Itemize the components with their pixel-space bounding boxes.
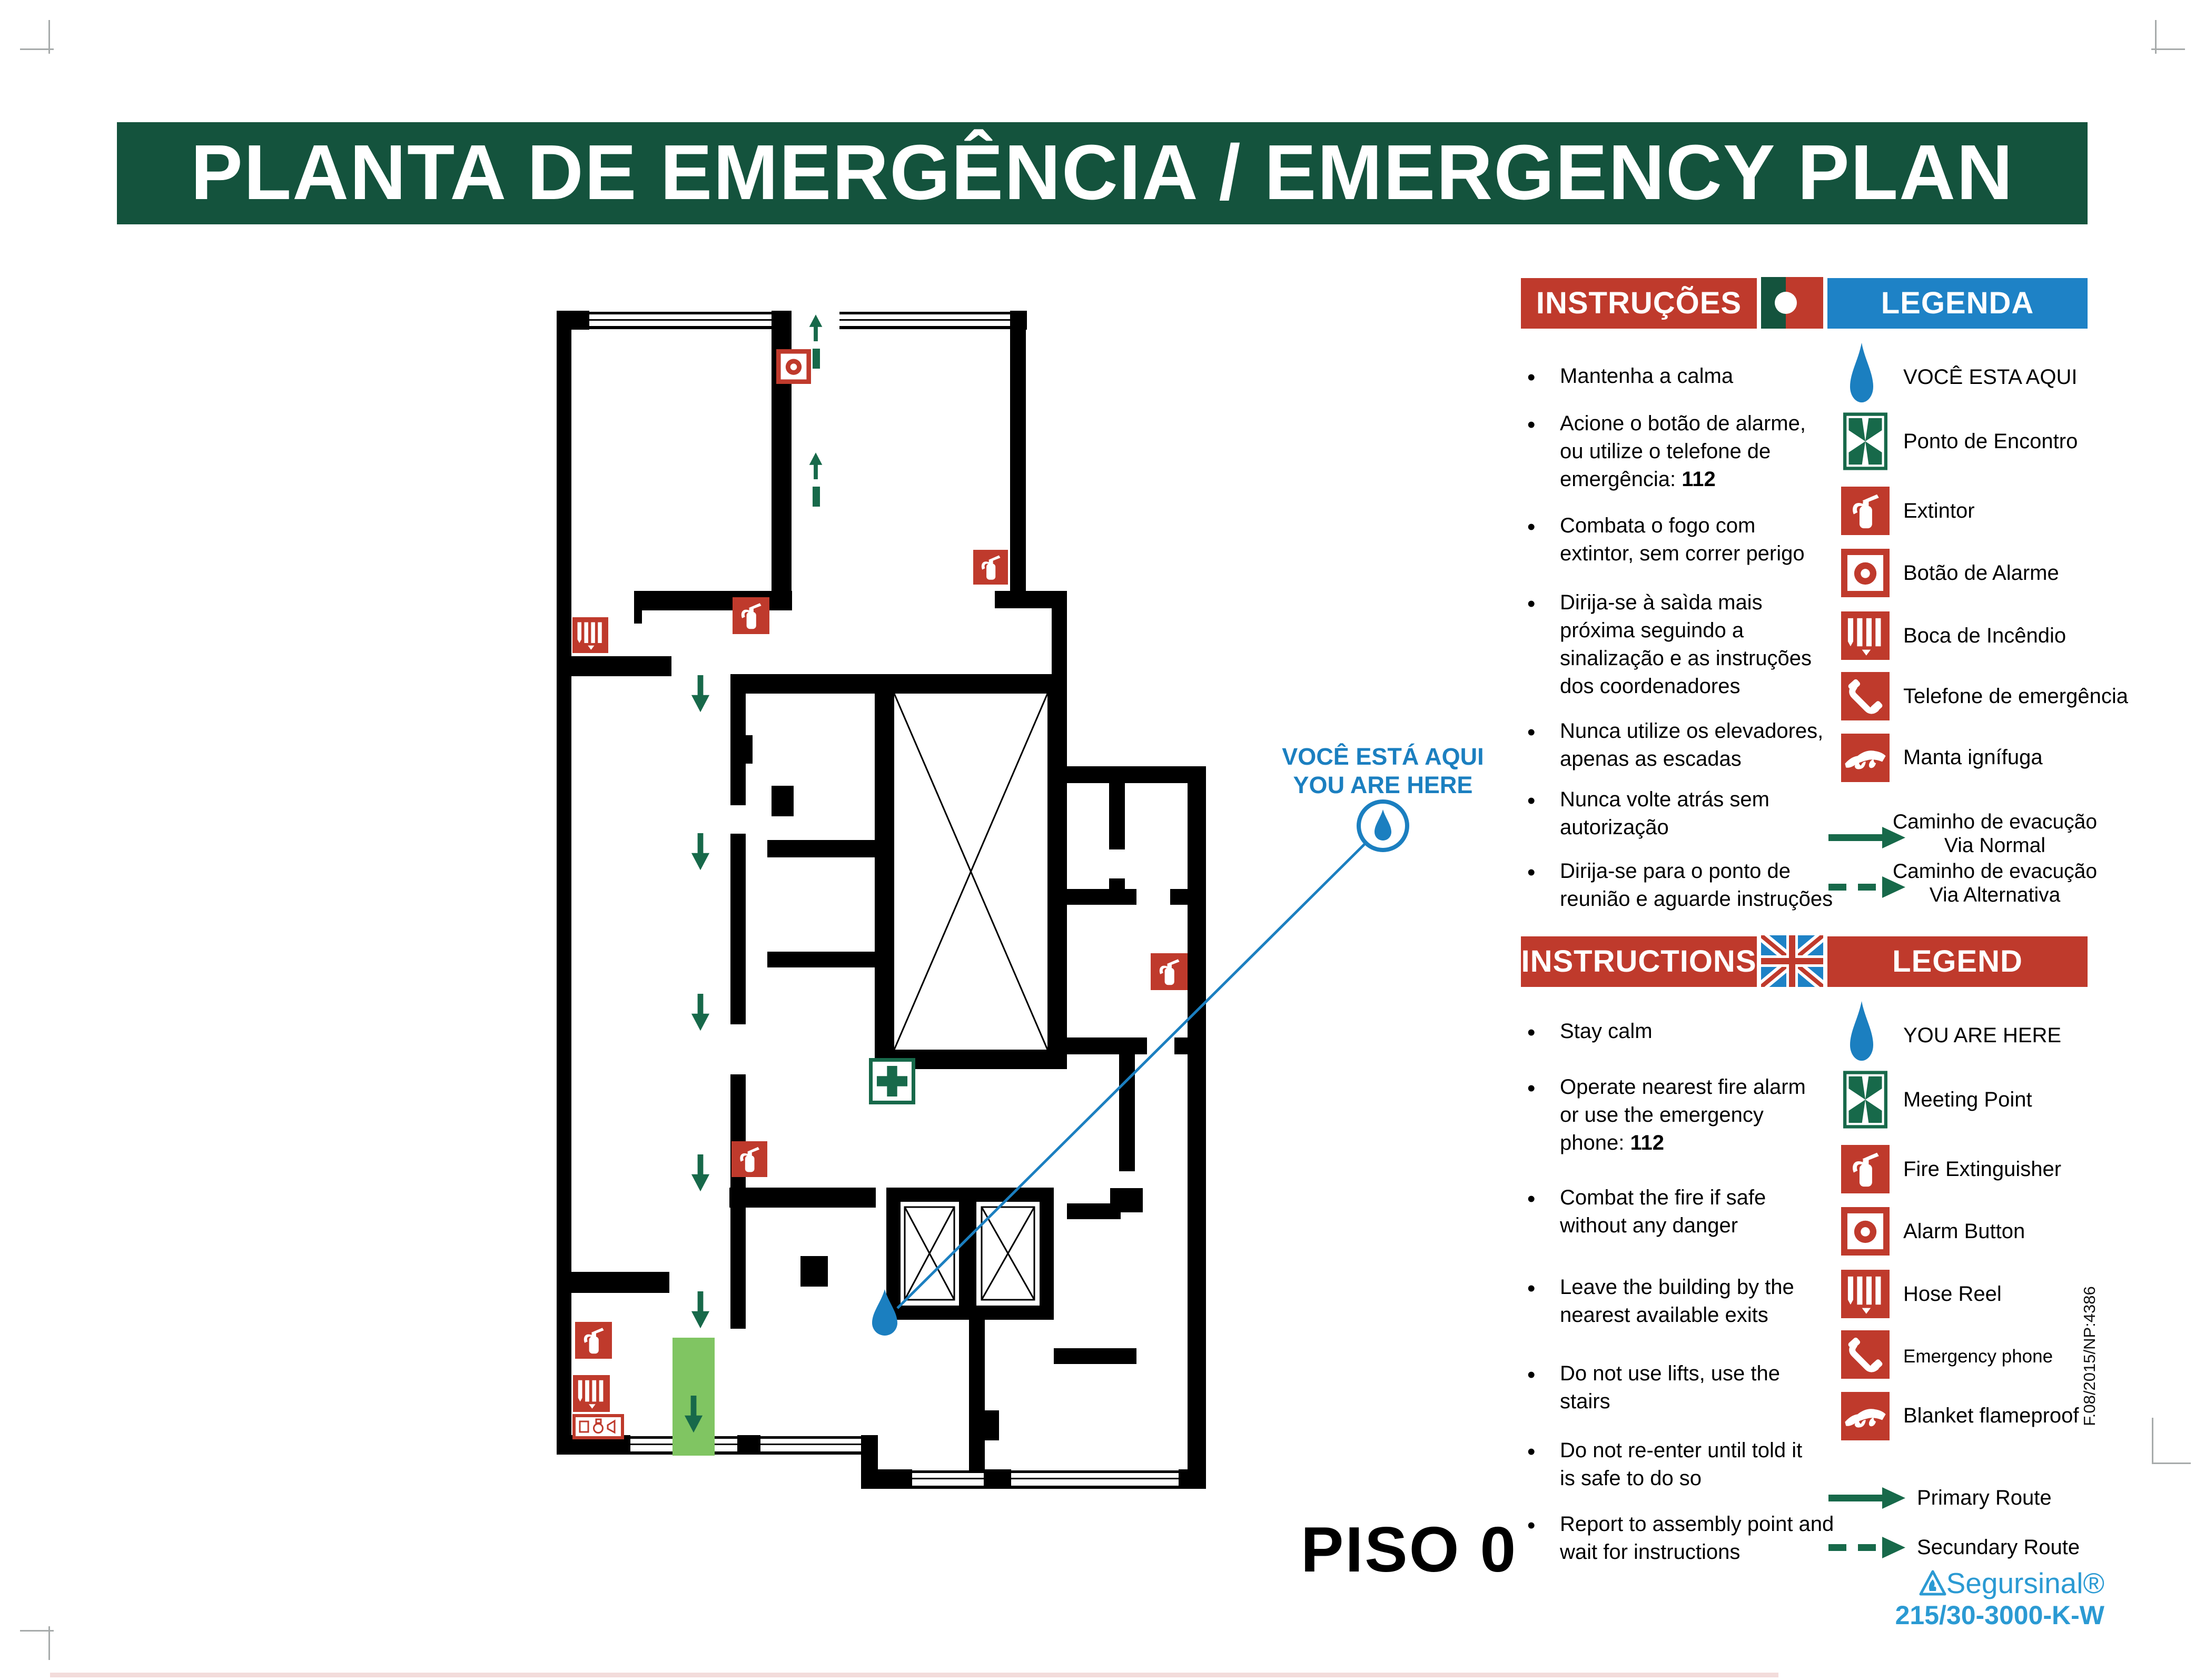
fire-blanket-icon [1841, 1390, 1890, 1442]
floor-label: PISO 0 [1301, 1513, 1517, 1586]
pt-legend-header: LEGENDA [1827, 278, 2088, 329]
emergency-phone-icon [1841, 670, 1890, 723]
crop-mark [20, 1630, 54, 1632]
legend-label: Blanket flameproof [1903, 1403, 2079, 1428]
legend-label: Manta ignífuga [1903, 745, 2043, 770]
route-down-arrow [691, 1291, 709, 1328]
legend-label: YOU ARE HERE [1903, 1023, 2061, 1048]
legend-label: VOCÊ ESTA AQUI [1903, 364, 2077, 390]
crop-mark [2152, 1462, 2191, 1464]
legend-label: Fire Extinguisher [1903, 1157, 2061, 1182]
pt-instructions-header: INSTRUÇÕES [1521, 278, 1757, 329]
fire-extinguisher-icon [1841, 483, 1890, 538]
alarm-button-icon [776, 349, 811, 384]
brand-triangle-icon [1919, 1570, 1946, 1596]
hose-reel-icon [572, 617, 608, 653]
crop-mark [20, 48, 54, 50]
en-legend-header-text: LEGEND [1892, 944, 2023, 979]
route-down-arrow [691, 994, 709, 1031]
you-are-here-drop-icon [1846, 1000, 1877, 1071]
brand-model: 215/30-3000-K-W [1875, 1600, 2104, 1630]
route-up-arrow [809, 452, 823, 479]
fire-extinguisher-icon [1151, 953, 1188, 990]
route-down-arrow [691, 675, 709, 712]
hose-reel-icon [1841, 1267, 1890, 1321]
first-aid-icon [871, 1060, 914, 1103]
legend-label: Hose Reel [1903, 1281, 2002, 1307]
legend-label: Caminho de evacução Via Alternativa [1890, 859, 2100, 907]
hose-reel-icon [573, 1375, 610, 1412]
meeting-point-icon [1843, 412, 1887, 471]
legend-label: Caminho de evacução Via Normal [1890, 810, 2100, 857]
legend-label: Primary Route [1917, 1485, 2052, 1510]
doc-reference: F.08/2015/NP:4386 [2080, 1286, 2099, 1426]
pt-legend-header-text: LEGENDA [1881, 286, 2034, 320]
route-solid-arrow-icon [1827, 1486, 1906, 1509]
legend-label: Emergency phone [1903, 1344, 2053, 1369]
bottom-edge-strip [50, 1673, 1778, 1677]
meeting-point-icon [1843, 1070, 1887, 1129]
instruction-line: Nunca volte atrás sem [1560, 786, 1897, 814]
legend-label: Meeting Point [1903, 1087, 2032, 1112]
brand-logo: Segursinal® [1875, 1568, 2104, 1598]
floor-plan: VOCÊ ESTÁ AQUI YOU ARE HERE [553, 284, 1527, 1511]
pt-instructions-header-text: INSTRUÇÕES [1536, 286, 1742, 320]
legend-label: Alarm Button [1903, 1219, 2025, 1244]
fire-extinguisher-icon [733, 597, 769, 634]
fire-extinguisher-icon [973, 550, 1008, 585]
alarm-button-icon [1841, 1205, 1890, 1258]
fire-extinguisher-icon [575, 1322, 612, 1359]
brand-name: Segursinal® [1946, 1567, 2104, 1599]
legend-label: Secundary Route [1917, 1535, 2080, 1560]
route-down-arrow [691, 833, 709, 870]
you-are-here-label-en: YOU ARE HERE [1293, 772, 1473, 798]
emergency-plan-poster: PLANTA DE EMERGÊNCIA / EMERGENCY PLAN [0, 0, 2205, 1680]
leader-line [897, 844, 1365, 1308]
legend-label: Boca de Incêndio [1903, 623, 2066, 648]
crop-mark [2151, 48, 2185, 50]
legend-label: Telefone de emergência [1903, 684, 2128, 709]
instruction-line: Report to assembly point and [1560, 1510, 1897, 1538]
route-down-arrow [691, 1154, 709, 1191]
alarm-button-icon [1841, 547, 1890, 599]
en-instructions-header-text: INSTRUCTIONS [1521, 944, 1757, 979]
hose-reel-icon [1841, 608, 1890, 663]
emergency-phone-icon [1841, 1328, 1890, 1381]
fire-blanket-icon [1841, 732, 1890, 784]
you-are-here-drop-icon [1846, 341, 1877, 412]
route-dashed-arrow-icon [1827, 1536, 1906, 1559]
page-title: PLANTA DE EMERGÊNCIA / EMERGENCY PLAN [117, 122, 2088, 224]
uk-flag-icon [1761, 935, 1823, 987]
legend-label: Extintor [1903, 498, 1975, 523]
page-title-text: PLANTA DE EMERGÊNCIA / EMERGENCY PLAN [191, 129, 2014, 216]
route-up-arrow [809, 314, 823, 341]
you-are-here-label-pt: VOCÊ ESTÁ AQUI [1282, 743, 1484, 770]
stairwell [894, 694, 1047, 1050]
fire-extinguisher-icon [1841, 1142, 1890, 1197]
portugal-flag-icon [1761, 277, 1823, 329]
legend-label: Ponto de Encontro [1903, 429, 2078, 454]
legend-label: Botão de Alarme [1903, 560, 2059, 586]
fire-extinguisher-icon [731, 1141, 767, 1177]
en-instructions-header: INSTRUCTIONS [1521, 936, 1757, 987]
en-legend-header: LEGEND [1827, 936, 2088, 987]
en-instruction: • Do not re-enter until told it is safe … [1560, 1437, 1897, 1493]
crop-mark [2152, 1418, 2153, 1464]
utility-sign-icon [574, 1416, 622, 1438]
